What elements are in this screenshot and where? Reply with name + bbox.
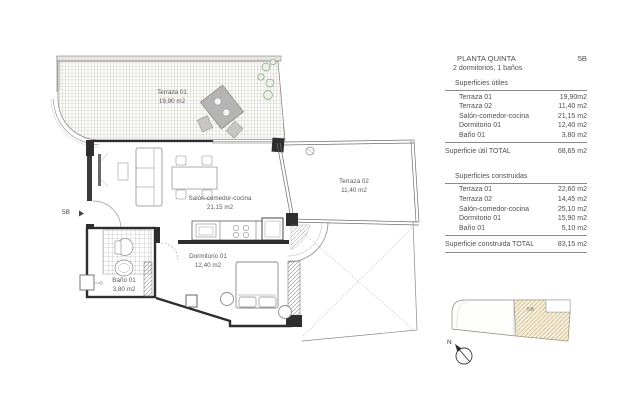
row-label: Salón-comedor-cocina bbox=[459, 205, 529, 215]
useful-surfaces-heading: Superficies útiles bbox=[445, 79, 587, 88]
entry-arrow-icon bbox=[79, 211, 84, 217]
room-area: 3,80 m2 bbox=[112, 285, 135, 294]
wall-niche-icon bbox=[186, 295, 197, 307]
room-name: Terraza 02 bbox=[339, 177, 369, 186]
surface-row: Baño 01 3,80 m2 bbox=[445, 131, 587, 141]
room-label-terraza-01: Terraza 01 19,90 m2 bbox=[157, 88, 187, 106]
room-label-dormitorio: Dormitorio 01 12,40 m2 bbox=[189, 252, 227, 270]
row-value: 19,90m2 bbox=[560, 93, 587, 103]
room-label-terraza-02: Terraza 02 11,40 m2 bbox=[339, 177, 369, 195]
sofa-icon bbox=[136, 148, 162, 206]
row-label: Terraza 02 bbox=[459, 195, 492, 205]
total-value: 68,65 m2 bbox=[558, 147, 587, 156]
surface-row: Terraza 02 11,40 m2 bbox=[445, 102, 587, 112]
room-label-bano: Baño 01 3,80 m2 bbox=[112, 276, 135, 294]
surfaces-panel: PLANTA QUINTA 5B 2 dormitorios, 1 baños … bbox=[445, 54, 587, 254]
row-label: Baño 01 bbox=[459, 131, 485, 141]
surface-row: Terraza 01 22,60 m2 bbox=[445, 185, 587, 195]
built-surfaces-heading: Superficies construidas bbox=[445, 172, 587, 181]
row-label: Salón-comedor-cocina bbox=[459, 112, 529, 122]
room-name: Baño 01 bbox=[112, 276, 135, 285]
surface-row: Salón-comedor-cocina 21,15 m2 bbox=[445, 112, 587, 122]
dining-table-icon bbox=[172, 156, 217, 199]
row-value: 22,60 m2 bbox=[558, 185, 587, 195]
row-value: 14,45 m2 bbox=[558, 195, 587, 205]
surface-row: Baño 01 5,10 m2 bbox=[445, 224, 587, 234]
keyplan-unit-label: 5B bbox=[527, 307, 534, 313]
row-label: Dormitorio 01 bbox=[459, 214, 501, 224]
room-name: Dormitorio 01 bbox=[189, 252, 227, 261]
row-label: Terraza 01 bbox=[459, 185, 492, 195]
surface-row: Salón-comedor-cocina 25,10 m2 bbox=[445, 205, 587, 215]
divider bbox=[445, 235, 587, 236]
north-letter: N bbox=[447, 339, 452, 346]
tv-icon bbox=[98, 153, 108, 187]
room-name: Salón-comedor-cocina bbox=[189, 194, 252, 203]
divider bbox=[445, 183, 587, 184]
room-area: 21,15 m2 bbox=[189, 203, 252, 212]
floorplan-sheet: Terraza 01 19,90 m2 Salón-comedor-cocina… bbox=[0, 0, 620, 406]
row-value: 21,15 m2 bbox=[558, 112, 587, 122]
key-plan bbox=[452, 300, 570, 341]
useful-total-row: Superficie útil TOTAL 68,65 m2 bbox=[445, 147, 587, 156]
unit-entry-label: 5B bbox=[62, 209, 70, 216]
row-value: 12,40 m2 bbox=[558, 121, 587, 131]
row-label: Terraza 02 bbox=[459, 102, 492, 112]
room-area: 12,40 m2 bbox=[189, 261, 227, 270]
row-value: 5,10 m2 bbox=[562, 224, 587, 234]
total-label: Superficie construida TOTAL bbox=[445, 240, 534, 249]
room-name: Terraza 01 bbox=[157, 88, 187, 97]
row-label: Baño 01 bbox=[459, 224, 485, 234]
adjacent-area-region bbox=[288, 221, 417, 341]
north-arrow-icon bbox=[455, 344, 472, 364]
row-value: 25,10 m2 bbox=[558, 205, 587, 215]
total-label: Superficie útil TOTAL bbox=[445, 147, 511, 156]
kitchen-counter-icon bbox=[192, 218, 283, 240]
bed-icon bbox=[221, 262, 292, 319]
surface-row: Terraza 01 19,90m2 bbox=[445, 93, 587, 103]
total-value: 83,15 m2 bbox=[558, 240, 587, 249]
room-area: 19,90 m2 bbox=[157, 97, 187, 106]
divider bbox=[445, 142, 587, 143]
row-label: Dormitorio 01 bbox=[459, 121, 501, 131]
surface-row: Dormitorio 01 12,40 m2 bbox=[445, 121, 587, 131]
built-total-row: Superficie construida TOTAL 83,15 m2 bbox=[445, 240, 587, 249]
plan-subtitle: 2 dormitorios, 1 baños bbox=[445, 64, 587, 73]
surface-row: Terraza 02 14,45 m2 bbox=[445, 195, 587, 205]
room-label-salon: Salón-comedor-cocina 21,15 m2 bbox=[189, 194, 252, 212]
plan-title: PLANTA QUINTA bbox=[457, 54, 516, 63]
panel-header: PLANTA QUINTA 5B bbox=[445, 54, 587, 63]
row-value: 11,40 m2 bbox=[558, 102, 587, 112]
row-label: Terraza 01 bbox=[459, 93, 492, 103]
room-area: 11,40 m2 bbox=[339, 186, 369, 195]
surface-row: Dormitorio 01 15,90 m2 bbox=[445, 214, 587, 224]
side-table-icon bbox=[118, 163, 128, 180]
divider bbox=[445, 90, 587, 91]
divider bbox=[445, 252, 587, 253]
unit-badge: 5B bbox=[578, 54, 587, 63]
row-value: 3,80 m2 bbox=[562, 131, 587, 141]
unit-entry-text: 5B bbox=[62, 209, 70, 216]
row-value: 15,90 m2 bbox=[558, 214, 587, 224]
